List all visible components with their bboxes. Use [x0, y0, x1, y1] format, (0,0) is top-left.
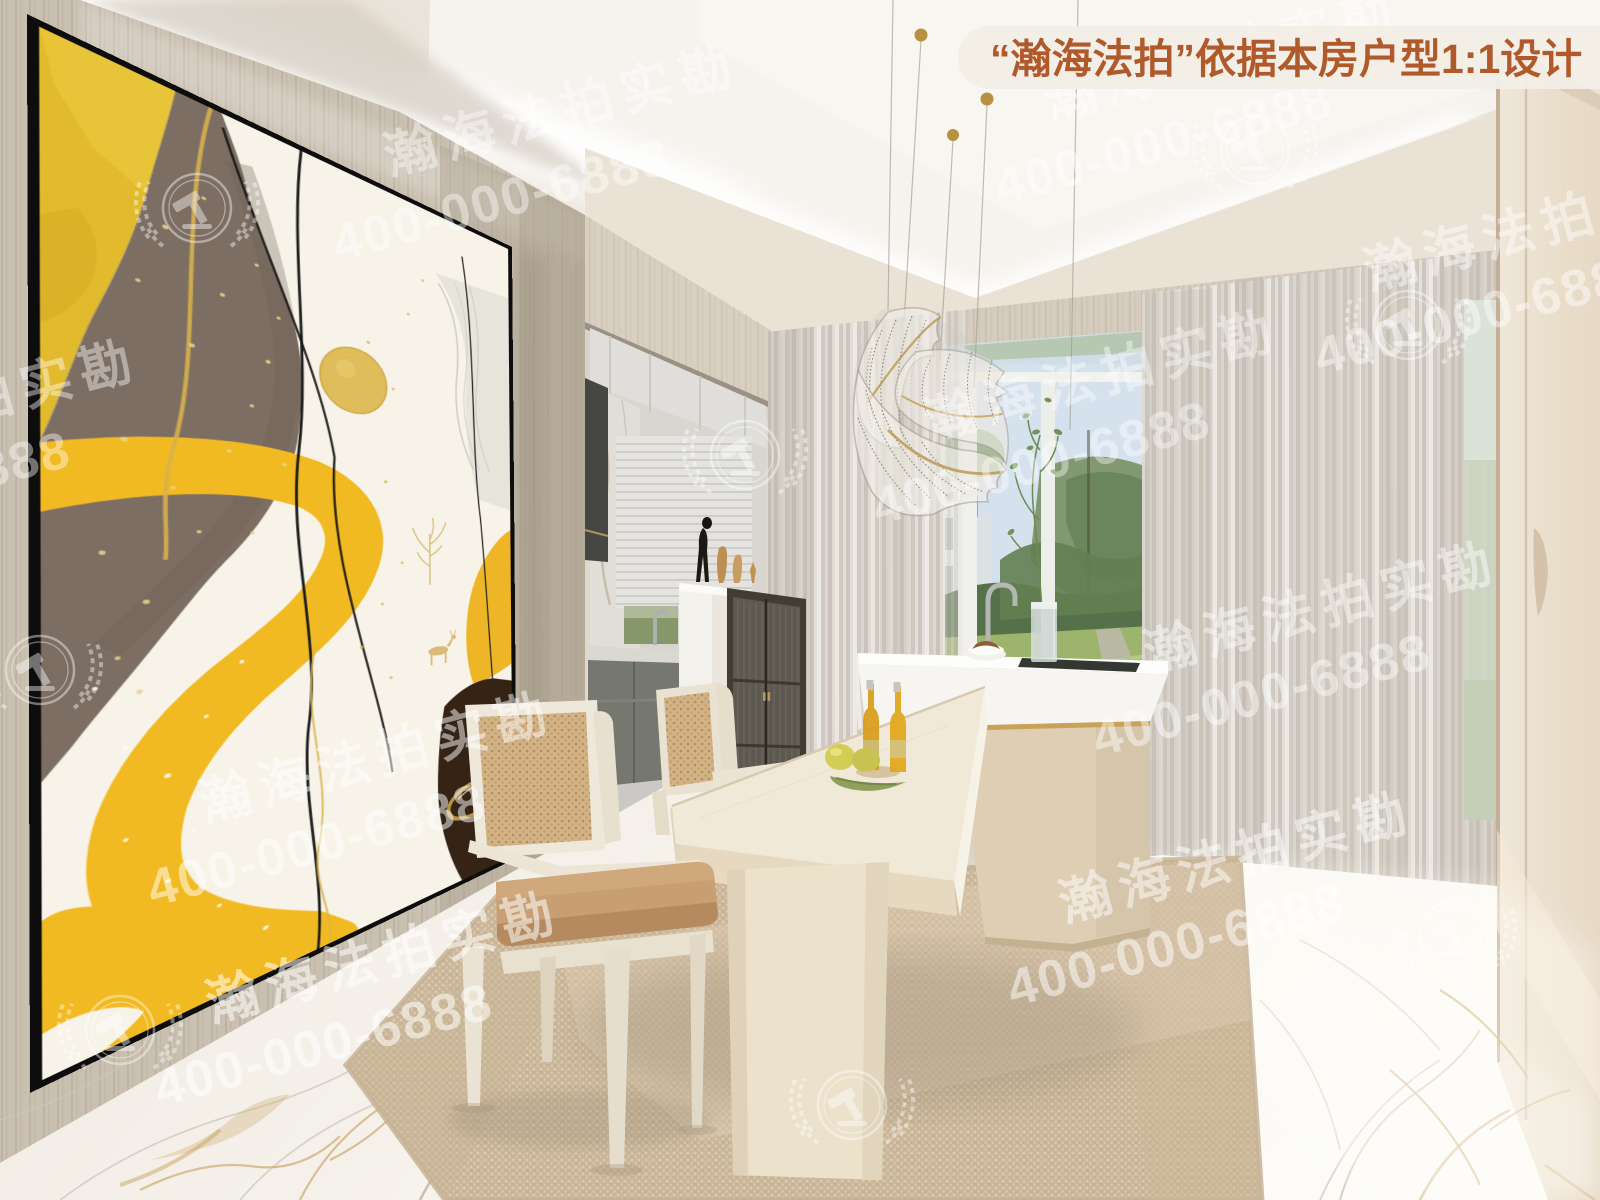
svg-text:400-000-6888: 400-000-6888: [0, 421, 77, 567]
svg-text:“瀚海法拍”依据本房户型1:1设计: “瀚海法拍”依据本房户型1:1设计: [990, 36, 1582, 82]
